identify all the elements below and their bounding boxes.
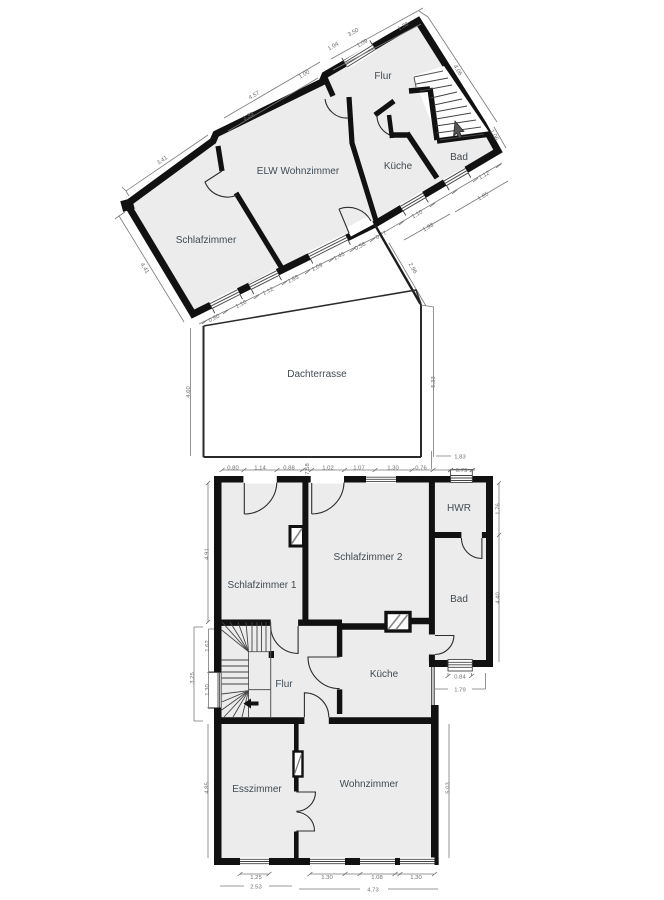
svg-text:1.30: 1.30 [205, 684, 211, 696]
svg-text:1.30: 1.30 [410, 875, 422, 881]
svg-text:7.58: 7.58 [305, 463, 311, 475]
svg-text:Dachterrasse: Dachterrasse [287, 369, 347, 380]
svg-text:HWR: HWR [447, 503, 471, 514]
svg-text:Bad: Bad [450, 594, 468, 605]
svg-text:1.62: 1.62 [205, 640, 211, 651]
svg-text:3.25: 3.25 [190, 672, 196, 684]
svg-text:0.76: 0.76 [415, 466, 427, 472]
svg-text:Küche: Küche [384, 161, 413, 172]
svg-text:Flur: Flur [275, 679, 293, 690]
svg-text:1.09: 1.09 [311, 263, 324, 274]
svg-text:1.10: 1.10 [411, 209, 425, 220]
svg-text:3.50: 3.50 [347, 27, 361, 38]
svg-text:2.53: 2.53 [250, 885, 262, 891]
svg-text:Esszimmer: Esszimmer [232, 784, 282, 795]
svg-text:1.65: 1.65 [287, 274, 301, 285]
svg-text:1.45: 1.45 [333, 251, 347, 262]
svg-text:Schlafzimmer 2: Schlafzimmer 2 [334, 552, 403, 563]
svg-text:4.85: 4.85 [205, 782, 211, 794]
svg-text:2.96: 2.96 [407, 262, 418, 276]
svg-text:Bad: Bad [450, 152, 468, 163]
svg-text:1.07: 1.07 [353, 466, 364, 472]
svg-text:Flur: Flur [374, 71, 392, 82]
svg-text:Schlafzimmer 1: Schlafzimmer 1 [228, 580, 297, 591]
svg-text:Wohnzimmer: Wohnzimmer [340, 779, 399, 790]
svg-text:1.76: 1.76 [496, 503, 502, 515]
svg-text:1.25: 1.25 [250, 875, 262, 881]
svg-text:4.57: 4.57 [248, 90, 261, 101]
svg-text:0.79: 0.79 [456, 468, 467, 474]
svg-text:1.02: 1.02 [322, 466, 333, 472]
svg-text:4.60: 4.60 [186, 386, 192, 398]
svg-text:5.03: 5.03 [446, 782, 452, 794]
svg-text:1.12: 1.12 [478, 170, 491, 181]
svg-text:3.41: 3.41 [156, 155, 169, 166]
svg-text:0.80: 0.80 [227, 466, 239, 472]
svg-text:1.00: 1.00 [298, 69, 312, 80]
svg-text:1.04: 1.04 [327, 41, 341, 52]
svg-text:1.30: 1.30 [387, 466, 399, 472]
svg-text:1.14: 1.14 [254, 466, 266, 472]
svg-text:5.33: 5.33 [431, 376, 437, 388]
svg-text:1.12: 1.12 [262, 287, 275, 298]
svg-text:ELW Wohnzimmer: ELW Wohnzimmer [257, 166, 340, 177]
svg-text:0.56: 0.56 [354, 241, 368, 252]
svg-text:1.08: 1.08 [371, 875, 383, 881]
svg-text:Küche: Küche [370, 669, 399, 680]
svg-text:4.40: 4.40 [496, 592, 502, 604]
svg-text:0.88: 0.88 [283, 466, 295, 472]
svg-text:1.30: 1.30 [321, 875, 333, 881]
svg-text:0.84: 0.84 [454, 675, 466, 681]
svg-text:1.83: 1.83 [454, 455, 466, 461]
svg-text:4.73: 4.73 [367, 888, 379, 894]
svg-text:4.91: 4.91 [205, 548, 211, 559]
svg-text:Schlafzimmer: Schlafzimmer [176, 235, 237, 246]
svg-text:1.79: 1.79 [454, 688, 465, 694]
